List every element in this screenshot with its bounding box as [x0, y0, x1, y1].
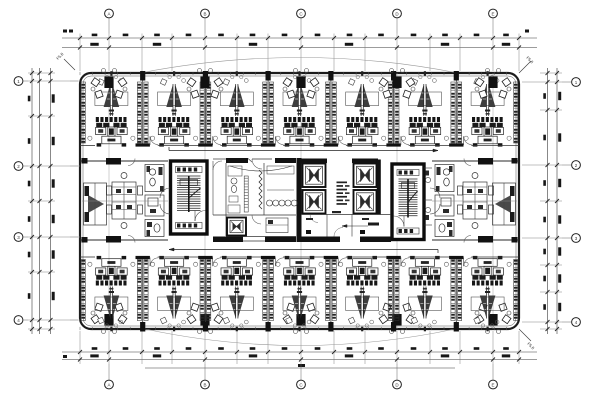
svg-text:E: E	[491, 383, 494, 388]
svg-text:B: B	[203, 383, 206, 388]
svg-text:C: C	[299, 383, 303, 388]
svg-text:A: A	[107, 383, 110, 388]
svg-text:1: 1	[575, 80, 578, 85]
svg-text:2: 2	[575, 163, 578, 168]
svg-text:E: E	[491, 12, 494, 17]
svg-text:F5.8: F5.8	[526, 341, 536, 351]
svg-text:C: C	[299, 12, 303, 17]
svg-text:4: 4	[575, 320, 578, 325]
svg-text:D: D	[395, 12, 399, 17]
svg-text:F5.8: F5.8	[55, 51, 65, 61]
svg-text:D: D	[395, 383, 399, 388]
svg-text:F5.8: F5.8	[525, 55, 535, 65]
svg-text:1: 1	[17, 79, 20, 84]
svg-text:3: 3	[17, 235, 20, 240]
svg-text:B: B	[203, 12, 206, 17]
svg-text:A: A	[107, 12, 110, 17]
svg-text:3: 3	[575, 236, 578, 241]
svg-text:2: 2	[17, 164, 20, 169]
svg-text:4: 4	[17, 318, 20, 323]
